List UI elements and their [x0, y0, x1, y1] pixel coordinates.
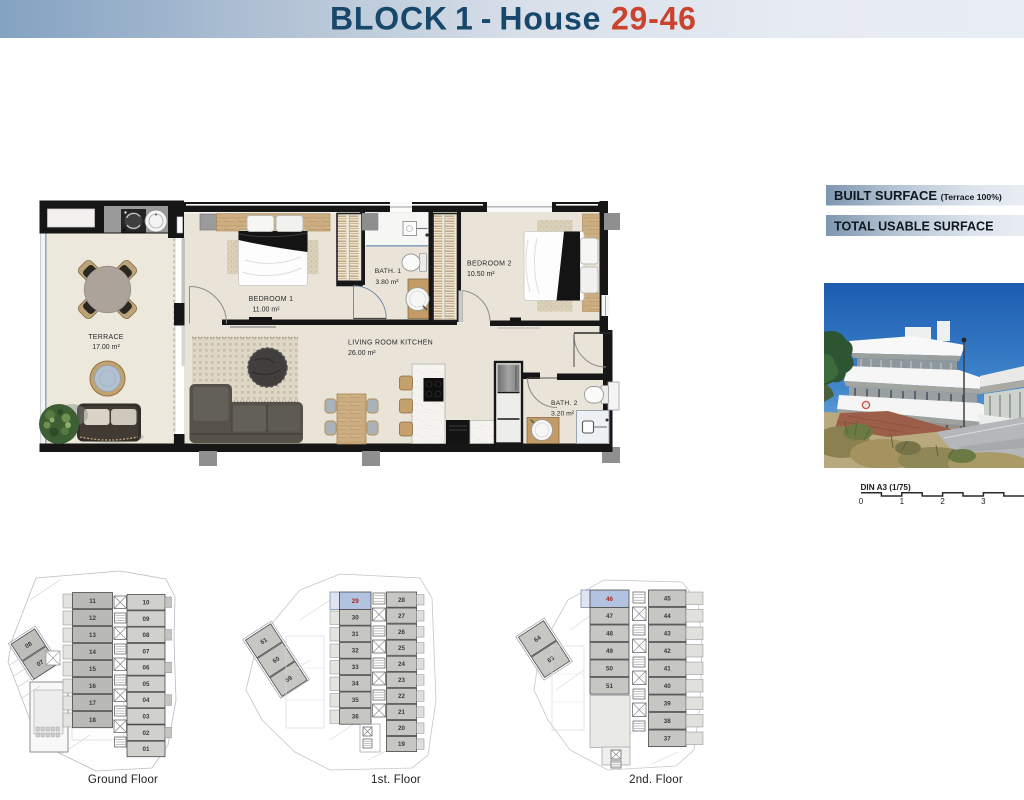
svg-text:37: 37 [664, 736, 671, 743]
svg-text:TERRACE: TERRACE [88, 334, 124, 341]
svg-text:3.80 m²: 3.80 m² [375, 279, 399, 286]
svg-text:51: 51 [606, 683, 613, 690]
svg-text:10: 10 [143, 600, 150, 607]
svg-text:11: 11 [89, 598, 96, 605]
svg-text:23: 23 [398, 677, 405, 684]
svg-text:18: 18 [89, 717, 96, 724]
svg-text:24: 24 [398, 661, 405, 668]
svg-text:BEDROOM 1: BEDROOM 1 [249, 296, 294, 303]
svg-text:41: 41 [664, 666, 671, 673]
svg-text:32: 32 [352, 648, 359, 655]
svg-text:31: 31 [352, 631, 359, 638]
svg-text:20: 20 [398, 725, 405, 732]
svg-text:3: 3 [981, 497, 986, 506]
svg-text:17.00 m²: 17.00 m² [92, 344, 120, 351]
svg-text:27: 27 [398, 613, 405, 620]
svg-text:0: 0 [859, 497, 864, 506]
svg-text:06: 06 [143, 665, 150, 672]
svg-text:36: 36 [352, 714, 359, 721]
svg-text:11.00 m²: 11.00 m² [252, 307, 280, 314]
svg-text:Ground Floor: Ground Floor [88, 774, 158, 786]
svg-text:LIVING ROOM KITCHEN: LIVING ROOM KITCHEN [348, 340, 433, 347]
svg-text:04: 04 [143, 697, 150, 704]
svg-text:1: 1 [900, 497, 905, 506]
svg-text:26.00 m²: 26.00 m² [348, 350, 376, 357]
svg-text:14: 14 [89, 649, 96, 656]
svg-text:29: 29 [352, 598, 359, 605]
svg-text:48: 48 [606, 631, 613, 638]
svg-text:47: 47 [606, 613, 613, 620]
svg-text:25: 25 [398, 645, 405, 652]
svg-text:01: 01 [143, 746, 150, 753]
svg-text:08: 08 [143, 632, 150, 639]
svg-text:45: 45 [664, 596, 671, 603]
svg-text:39: 39 [664, 701, 671, 708]
svg-text:21: 21 [398, 709, 405, 716]
svg-text:1st. Floor: 1st. Floor [371, 774, 421, 786]
svg-text:09: 09 [143, 616, 150, 623]
svg-text:46: 46 [606, 596, 613, 603]
svg-text:05: 05 [143, 681, 150, 688]
svg-text:17: 17 [89, 700, 96, 707]
svg-text:44: 44 [664, 613, 671, 620]
svg-text:03: 03 [143, 714, 150, 721]
svg-text:DIN A3 (1/75): DIN A3 (1/75) [861, 483, 911, 492]
svg-text:BATH. 2: BATH. 2 [551, 400, 578, 407]
svg-text:16: 16 [89, 683, 96, 690]
svg-text:07: 07 [143, 648, 150, 655]
svg-text:43: 43 [664, 631, 671, 638]
svg-text:40: 40 [664, 683, 671, 690]
svg-text:42: 42 [664, 648, 671, 655]
svg-text:3.20 m²: 3.20 m² [551, 411, 575, 418]
svg-text:35: 35 [352, 697, 359, 704]
svg-text:02: 02 [143, 730, 150, 737]
svg-text:12: 12 [89, 615, 96, 622]
svg-text:38: 38 [664, 718, 671, 725]
svg-text:2: 2 [940, 497, 945, 506]
svg-text:33: 33 [352, 664, 359, 671]
svg-text:50: 50 [606, 666, 613, 673]
svg-text:TOTAL USABLE SURFACE: TOTAL USABLE SURFACE [834, 220, 994, 234]
svg-text:34: 34 [352, 681, 359, 688]
svg-text:15: 15 [89, 666, 96, 673]
svg-text:28: 28 [398, 597, 405, 604]
svg-text:13: 13 [89, 632, 96, 639]
svg-text:BATH. 1: BATH. 1 [375, 268, 402, 275]
svg-text:30: 30 [352, 615, 359, 622]
svg-text:2nd. Floor: 2nd. Floor [629, 774, 683, 786]
svg-text:26: 26 [398, 629, 405, 636]
svg-text:BLOCK 1 - House 29-46: BLOCK 1 - House 29-46 [330, 1, 697, 37]
svg-text:49: 49 [606, 648, 613, 655]
svg-text:22: 22 [398, 693, 405, 700]
svg-text:BEDROOM 2: BEDROOM 2 [467, 261, 512, 268]
svg-text:19: 19 [398, 741, 405, 748]
svg-text:10.50 m²: 10.50 m² [467, 271, 495, 278]
